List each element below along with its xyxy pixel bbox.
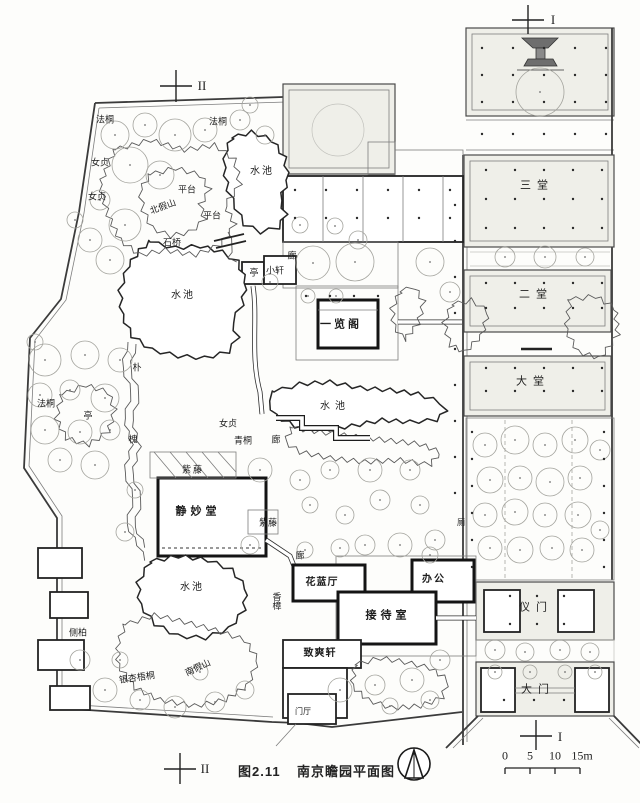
tree-center-dot xyxy=(307,295,309,297)
tree-center-dot xyxy=(204,129,206,131)
plan-label-0: 法桐 xyxy=(96,116,114,125)
tree-center-dot xyxy=(369,469,371,471)
jingmiaotang-complex xyxy=(150,452,294,566)
tree-center-dot xyxy=(574,439,576,441)
column-dot xyxy=(454,348,456,350)
tree-center-dot xyxy=(544,514,546,516)
column-dot xyxy=(471,431,473,433)
column-dot xyxy=(454,276,456,278)
column-dot xyxy=(454,456,456,458)
column-dot xyxy=(601,367,603,369)
column-dot xyxy=(543,307,545,309)
column-dot xyxy=(481,74,483,76)
plan-label-9: 亭 xyxy=(249,269,258,278)
tree-center-dot xyxy=(339,547,341,549)
pond-shape xyxy=(136,555,247,640)
column-dot xyxy=(471,512,473,514)
plan-label-21: 槐 xyxy=(128,436,137,445)
tree-center-dot xyxy=(119,359,121,361)
column-dot xyxy=(603,485,605,487)
tree-center-dot xyxy=(577,514,579,516)
column-dot xyxy=(536,623,538,625)
tree-center-dot xyxy=(329,469,331,471)
plan-label-12: 水池 xyxy=(171,291,195,301)
column-dot xyxy=(563,623,565,625)
column-dot xyxy=(509,623,511,625)
plan-label-4: 水池 xyxy=(250,167,274,177)
garden-plan-figure: 法桐法桐女贞女贞水池平台北假山平台石桥亭小轩廊水池一览阁朴法桐亭水池女贞青桐廊槐… xyxy=(0,0,640,803)
scale-bar xyxy=(505,768,580,774)
plan-label-30: 接待室 xyxy=(366,611,411,622)
column-dot xyxy=(543,198,545,200)
column-dot xyxy=(514,367,516,369)
scale-tick-5: 5 xyxy=(527,749,533,764)
column-dot xyxy=(514,198,516,200)
plan-label-29: 办公 xyxy=(422,575,446,585)
tree-center-dot xyxy=(489,479,491,481)
tree-center-dot xyxy=(124,224,126,226)
plan-label-35: 致爽轩 xyxy=(304,649,337,659)
column-dot xyxy=(471,485,473,487)
column-dot xyxy=(353,295,355,297)
tree-center-dot xyxy=(449,291,451,293)
column-dot xyxy=(603,512,605,514)
column-dot xyxy=(481,101,483,103)
column-dot xyxy=(536,595,538,597)
column-dot xyxy=(471,539,473,541)
tree-center-dot xyxy=(174,134,176,136)
stream-line xyxy=(123,342,145,561)
column-dot xyxy=(325,217,327,219)
tree-center-dot xyxy=(264,134,266,136)
tree-center-dot xyxy=(484,444,486,446)
tree-center-dot xyxy=(334,225,336,227)
plan-label-23: 静妙堂 xyxy=(176,507,221,518)
column-dot xyxy=(509,595,511,597)
tree-center-dot xyxy=(239,119,241,121)
column-dot xyxy=(572,390,574,392)
column-dot xyxy=(563,699,565,701)
column-dot xyxy=(481,133,483,135)
column-dot xyxy=(485,390,487,392)
column-dot xyxy=(418,217,420,219)
tree-center-dot xyxy=(94,464,96,466)
plan-label-31: 侧柏 xyxy=(69,629,87,638)
tree-center-dot xyxy=(249,104,251,106)
column-dot xyxy=(294,217,296,219)
tree-center-dot xyxy=(579,477,581,479)
tree-center-dot xyxy=(389,705,391,707)
tree-center-dot xyxy=(44,429,46,431)
column-dot xyxy=(356,217,358,219)
column-dot xyxy=(454,384,456,386)
column-dot xyxy=(543,282,545,284)
column-dot xyxy=(543,390,545,392)
column-dot xyxy=(481,47,483,49)
tree-center-dot xyxy=(429,261,431,263)
pond-shape xyxy=(270,380,448,431)
tree-center-dot xyxy=(312,262,314,264)
tree-center-dot xyxy=(484,514,486,516)
column-dot xyxy=(449,189,451,191)
tree-center-dot xyxy=(489,547,491,549)
plan-label-27: 廊 xyxy=(295,552,304,561)
north-buildings xyxy=(283,84,463,288)
plan-label-15: 法桐 xyxy=(37,400,55,409)
plan-label-1: 法桐 xyxy=(209,118,227,127)
tree-center-dot xyxy=(514,439,516,441)
column-dot xyxy=(454,240,456,242)
tree-center-dot xyxy=(494,649,496,651)
tree-center-dot xyxy=(599,449,601,451)
tree-center-dot xyxy=(214,701,216,703)
tree-center-dot xyxy=(299,479,301,481)
plan-label-41: 大门 xyxy=(521,685,555,696)
tree-center-dot xyxy=(44,359,46,361)
column-dot xyxy=(572,227,574,229)
north-arrow-icon xyxy=(398,748,430,780)
tree-center-dot xyxy=(124,531,126,533)
plan-label-24: 紫藤 xyxy=(259,519,277,528)
column-dot xyxy=(454,312,456,314)
column-dot xyxy=(572,198,574,200)
tree-center-dot xyxy=(309,504,311,506)
plan-label-26: 香樟 xyxy=(272,592,281,610)
tree-center-dot xyxy=(134,489,136,491)
column-dot xyxy=(503,699,505,701)
column-dot xyxy=(543,169,545,171)
tree-center-dot xyxy=(159,174,161,176)
column-dot xyxy=(572,367,574,369)
column-dot xyxy=(605,101,607,103)
tree-center-dot xyxy=(544,256,546,258)
tree-center-dot xyxy=(439,659,441,661)
column-dot xyxy=(514,390,516,392)
tree-center-dot xyxy=(114,134,116,136)
column-dot xyxy=(485,169,487,171)
column-dot xyxy=(471,566,473,568)
tree-center-dot xyxy=(89,239,91,241)
plan-label-2: 女贞 xyxy=(91,159,109,168)
tree-center-dot xyxy=(374,684,376,686)
tree-center-dot xyxy=(335,295,337,297)
column-dot xyxy=(601,282,603,284)
tree-center-dot xyxy=(429,699,431,701)
tree-center-dot xyxy=(34,341,36,343)
tree-center-dot xyxy=(584,256,586,258)
column-dot xyxy=(543,74,545,76)
tree-center-dot xyxy=(599,529,601,531)
scale-tick-15: 15m xyxy=(571,749,592,764)
tree-center-dot xyxy=(594,671,596,673)
tree-center-dot xyxy=(589,651,591,653)
plan-label-3: 女贞 xyxy=(88,193,106,202)
column-dot xyxy=(454,204,456,206)
tree-center-dot xyxy=(174,706,176,708)
tree-center-dot xyxy=(411,679,413,681)
tree-center-dot xyxy=(74,219,76,221)
column-dot xyxy=(543,227,545,229)
plan-label-11: 廊 xyxy=(287,252,296,261)
tree-center-dot xyxy=(494,671,496,673)
column-dot xyxy=(485,307,487,309)
column-dot xyxy=(601,390,603,392)
column-dot xyxy=(329,295,331,297)
plan-label-17: 水池 xyxy=(320,402,350,412)
column-dot xyxy=(512,133,514,135)
column-dot xyxy=(485,282,487,284)
tree-center-dot xyxy=(524,651,526,653)
column-dot xyxy=(387,217,389,219)
tree-center-dot xyxy=(144,124,146,126)
column-dot xyxy=(512,47,514,49)
tree-center-dot xyxy=(514,511,516,513)
column-dot xyxy=(572,169,574,171)
tree-center-dot xyxy=(357,239,359,241)
column-dot xyxy=(514,227,516,229)
tree-center-dot xyxy=(69,389,71,391)
column-dot xyxy=(603,458,605,460)
scale-tick-10: 10 xyxy=(549,749,561,764)
column-dot xyxy=(572,282,574,284)
tree-center-dot xyxy=(344,514,346,516)
tree-center-dot xyxy=(434,539,436,541)
tree-center-dot xyxy=(581,549,583,551)
plan-label-8: 石桥 xyxy=(163,239,181,248)
plan-label-16: 亭 xyxy=(83,412,92,421)
tree-center-dot xyxy=(79,659,81,661)
column-dot xyxy=(601,307,603,309)
column-dot xyxy=(603,431,605,433)
plan-label-7: 平台 xyxy=(203,212,221,221)
column-dot xyxy=(572,307,574,309)
east-axis-halls xyxy=(446,28,640,748)
column-dot xyxy=(603,539,605,541)
plan-label-37: 三堂 xyxy=(520,181,554,192)
plan-label-28: 花蓝厅 xyxy=(306,578,339,588)
tree-center-dot xyxy=(79,431,81,433)
figure-caption-title: 南京瞻园平面图 xyxy=(297,761,395,780)
tree-center-dot xyxy=(519,477,521,479)
tree-center-dot xyxy=(259,469,261,471)
tree-center-dot xyxy=(39,394,41,396)
plan-label-19: 青桐 xyxy=(234,437,252,446)
tree-center-dot xyxy=(564,671,566,673)
column-dot xyxy=(533,699,535,701)
column-dot xyxy=(387,189,389,191)
tree-center-dot xyxy=(529,671,531,673)
tree-center-dot xyxy=(364,544,366,546)
tree-center-dot xyxy=(84,354,86,356)
column-dot xyxy=(574,74,576,76)
tree-center-dot xyxy=(409,469,411,471)
tree-center-dot xyxy=(551,547,553,549)
column-dot xyxy=(543,367,545,369)
column-dot xyxy=(454,492,456,494)
section-marker-top-right: I xyxy=(551,12,555,28)
column-dot xyxy=(605,133,607,135)
rockery-outline xyxy=(390,287,426,341)
column-dot xyxy=(356,189,358,191)
plan-label-32: 水池 xyxy=(180,583,204,593)
column-dot xyxy=(543,47,545,49)
figure-caption-number: 图2.11 xyxy=(238,761,281,780)
tree-center-dot xyxy=(399,544,401,546)
tree-center-dot xyxy=(379,499,381,501)
section-marker-bottom-left: II xyxy=(201,761,210,777)
plan-label-22: 紫藤 xyxy=(182,466,204,475)
column-dot xyxy=(601,169,603,171)
column-dot xyxy=(512,101,514,103)
column-dot xyxy=(514,169,516,171)
tree-center-dot xyxy=(129,164,131,166)
column-dot xyxy=(514,282,516,284)
plan-label-25: 厕 xyxy=(457,519,465,527)
column-dot xyxy=(418,189,420,191)
scale-tick-0: 0 xyxy=(502,749,508,764)
column-dot xyxy=(325,189,327,191)
plan-label-20: 廊 xyxy=(271,436,280,445)
pond-shape xyxy=(223,130,289,234)
tree-center-dot xyxy=(354,261,356,263)
column-dot xyxy=(485,227,487,229)
column-dot xyxy=(603,566,605,568)
tree-center-dot xyxy=(429,554,431,556)
column-dot xyxy=(449,217,451,219)
column-dot xyxy=(601,198,603,200)
column-dot xyxy=(471,458,473,460)
column-dot xyxy=(454,420,456,422)
tree-center-dot xyxy=(104,689,106,691)
column-dot xyxy=(485,367,487,369)
plan-label-14: 朴 xyxy=(132,364,141,373)
section-marker-top-left: II xyxy=(198,78,207,94)
tree-center-dot xyxy=(109,429,111,431)
tree-center-dot xyxy=(549,481,551,483)
tree-center-dot xyxy=(244,689,246,691)
column-dot xyxy=(294,189,296,191)
tree-center-dot xyxy=(249,544,251,546)
column-dot xyxy=(485,198,487,200)
section-marker-bottom-right: I xyxy=(558,729,562,745)
column-dot xyxy=(305,295,307,297)
tree-center-dot xyxy=(119,659,121,661)
plan-label-36: 门厅 xyxy=(295,708,311,716)
plan-label-5: 平台 xyxy=(178,186,196,195)
column-dot xyxy=(543,133,545,135)
tree-center-dot xyxy=(269,281,271,283)
column-dot xyxy=(574,133,576,135)
plan-label-38: 二堂 xyxy=(519,290,553,301)
column-dot xyxy=(574,47,576,49)
tree-center-dot xyxy=(419,504,421,506)
plan-label-18: 女贞 xyxy=(219,420,237,429)
column-dot xyxy=(543,101,545,103)
column-dot xyxy=(601,227,603,229)
column-dot xyxy=(605,47,607,49)
tree-center-dot xyxy=(539,91,541,93)
column-dot xyxy=(563,595,565,597)
tree-center-dot xyxy=(559,649,561,651)
column-dot xyxy=(512,74,514,76)
tree-center-dot xyxy=(139,699,141,701)
column-dot xyxy=(514,307,516,309)
plan-label-39: 大堂 xyxy=(516,377,550,388)
tree-center-dot xyxy=(504,256,506,258)
column-dot xyxy=(605,74,607,76)
plan-label-10: 小轩 xyxy=(266,267,284,276)
tree-center-dot xyxy=(339,689,341,691)
tree-center-dot xyxy=(299,224,301,226)
tree-center-dot xyxy=(104,397,106,399)
column-dot xyxy=(574,101,576,103)
tree-center-dot xyxy=(59,459,61,461)
tree-center-dot xyxy=(109,259,111,261)
column-dot xyxy=(377,295,379,297)
tree-center-dot xyxy=(519,549,521,551)
plan-label-40: 仪门 xyxy=(519,603,553,614)
plan-label-13: 一览阁 xyxy=(320,320,362,331)
tree-center-dot xyxy=(544,444,546,446)
